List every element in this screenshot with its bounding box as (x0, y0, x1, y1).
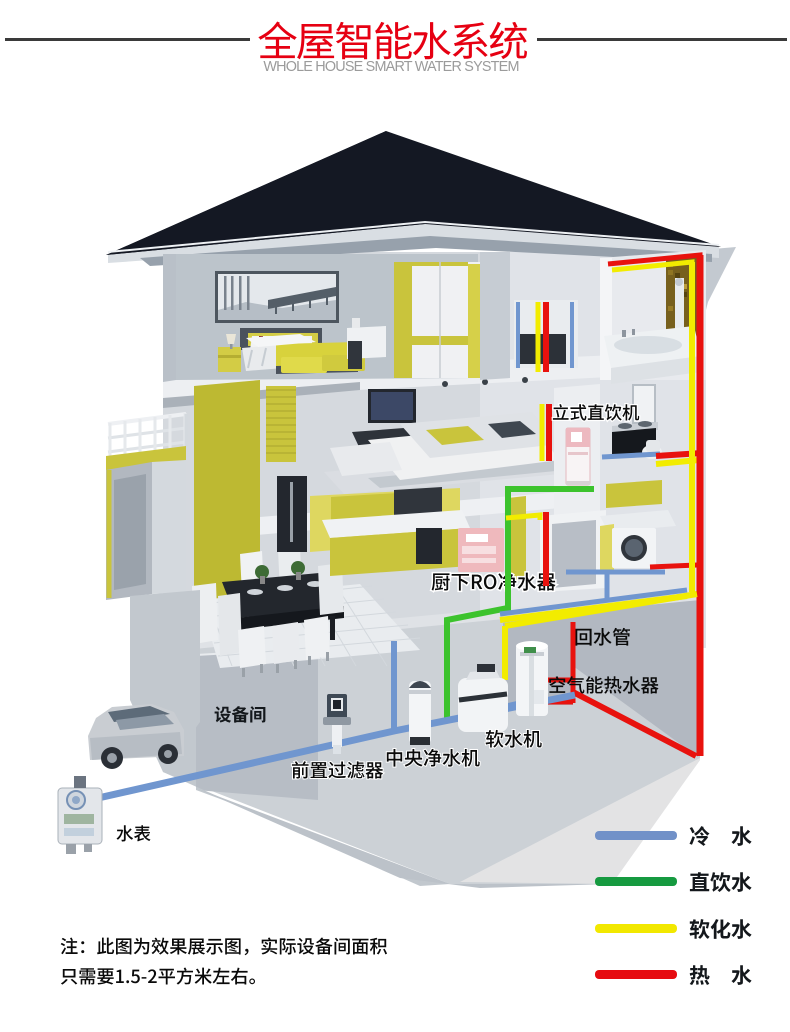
svg-text:WHOLE HOUSE SMART WATER SYSTEM: WHOLE HOUSE SMART WATER SYSTEM (263, 59, 518, 75)
